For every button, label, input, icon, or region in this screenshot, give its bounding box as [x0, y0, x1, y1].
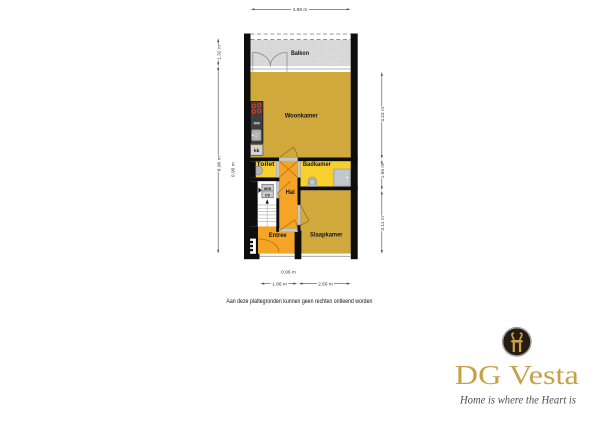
svg-text:Hal: Hal: [286, 189, 295, 196]
svg-text:8.96 m: 8.96 m: [216, 156, 221, 171]
svg-text:kk: kk: [254, 148, 260, 154]
svg-text:1.32 m: 1.32 m: [216, 45, 221, 60]
svg-text:cv: cv: [265, 192, 270, 197]
svg-text:Slaapkamer: Slaapkamer: [310, 232, 343, 239]
svg-text:3.11 m: 3.11 m: [380, 216, 385, 231]
svg-text:1.55 m: 1.55 m: [380, 164, 385, 179]
svg-text:1.86 m: 1.86 m: [272, 281, 287, 286]
svg-text:Entree: Entree: [269, 232, 287, 239]
svg-text:DG Vesta: DG Vesta: [455, 359, 579, 390]
svg-text:Aan deze plattegronden kunnen: Aan deze plattegronden kunnen geen recht…: [226, 298, 372, 305]
svg-text:4.23 m: 4.23 m: [380, 107, 385, 122]
svg-text:Home is where the Heart is: Home is where the Heart is: [459, 393, 576, 407]
svg-text:Woonkamer: Woonkamer: [285, 112, 318, 119]
svg-text:wm: wm: [263, 186, 271, 191]
svg-text:2.56 m: 2.56 m: [318, 281, 333, 286]
svg-text:Balkon: Balkon: [291, 50, 309, 57]
svg-text:Toilet: Toilet: [257, 161, 276, 168]
svg-text:vw: vw: [254, 121, 261, 126]
svg-text:0.95 m: 0.95 m: [231, 162, 236, 177]
svg-text:4.98 m: 4.98 m: [293, 7, 308, 12]
svg-text:0.96 m: 0.96 m: [281, 270, 296, 275]
svg-text:Badkamer: Badkamer: [303, 161, 331, 168]
